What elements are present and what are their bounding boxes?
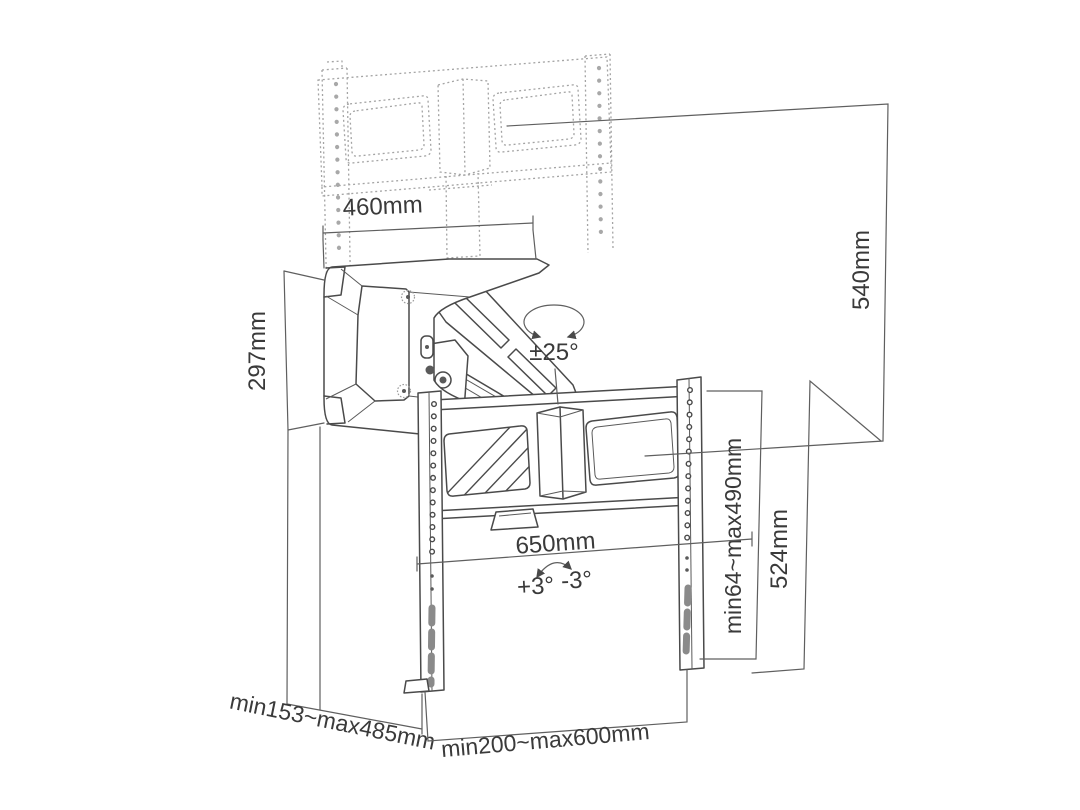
dim-label-bracket-height: 524mm bbox=[766, 509, 793, 589]
tilt-angle-label: ±25° bbox=[529, 339, 578, 366]
dim-label-wall-plate-height: 297mm bbox=[244, 311, 271, 391]
depth-range-label: min153~max485mm bbox=[228, 688, 438, 755]
dim-label-vertical-travel: 540mm bbox=[848, 230, 875, 310]
level-angle-plus-label: +3° bbox=[516, 572, 554, 601]
vesa-horizontal-range-label: min200~max600mm bbox=[440, 718, 650, 762]
level-angle-minus-label: -3° bbox=[560, 566, 592, 595]
vesa-vertical-range-label: min64~max490mm bbox=[720, 438, 746, 634]
tv-mount-dimension-diagram: 460mm 297mm ±25° 540mm min64~max490mm 52… bbox=[0, 0, 1080, 810]
dim-label-wall-plate-width: 460mm bbox=[342, 191, 423, 221]
technical-drawing-canvas: 460mm 297mm ±25° 540mm min64~max490mm 52… bbox=[0, 0, 1080, 810]
dim-label-bracket-width: 650mm bbox=[515, 527, 597, 560]
